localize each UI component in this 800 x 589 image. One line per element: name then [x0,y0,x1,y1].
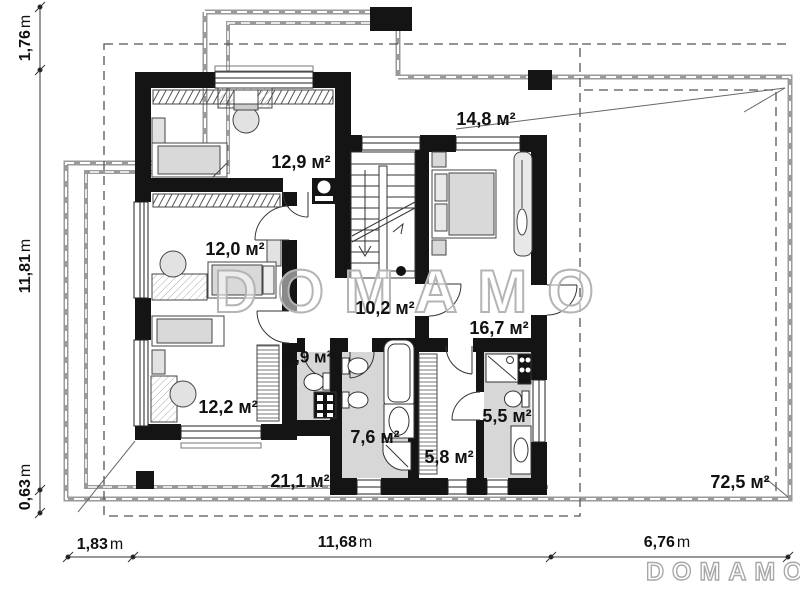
area-label-balcony-14-8: 14,8 м² [456,110,515,128]
area-label-bedroom-16-7: 16,7 м² [469,319,528,337]
area-label-wardrobe-5-8: 5,8 м² [424,448,473,466]
dim-bottom-1-83: 1,83m [77,537,123,553]
dim-left-11-81: 11,81m [18,239,34,293]
boiler [312,178,336,204]
dim-bottom-6-76: 6,76m [644,535,690,551]
watermark-corner: DOMAMO [646,560,800,585]
area-label-wc-2-9: 2,9 м² [286,349,333,366]
floor-plan-page: DOMAMO DOMAMO 12,9 м² 14,8 м² 12,0 м² 10… [0,0,800,589]
area-label-bedroom-12-0: 12,0 м² [205,240,264,258]
dim-left-1-76: 1,76m [18,15,34,61]
area-label-bedroom-12-9: 12,9 м² [271,153,330,171]
dim-bottom-11-68: 11,68m [318,535,372,551]
area-label-hall-10-2: 10,2 м² [355,299,414,317]
bedroom4-furniture [432,152,532,256]
area-label-bathroom-7-6: 7,6 м² [350,428,399,446]
area-label-bedroom-12-2: 12,2 м² [198,398,257,416]
area-label-bathroom-5-5: 5,5 м² [482,407,531,425]
area-label-roof-72-5: 72,5 м² [710,473,769,491]
area-label-terrace-21-1: 21,1 м² [270,472,329,490]
dim-left-0-63: 0,63m [18,464,34,510]
